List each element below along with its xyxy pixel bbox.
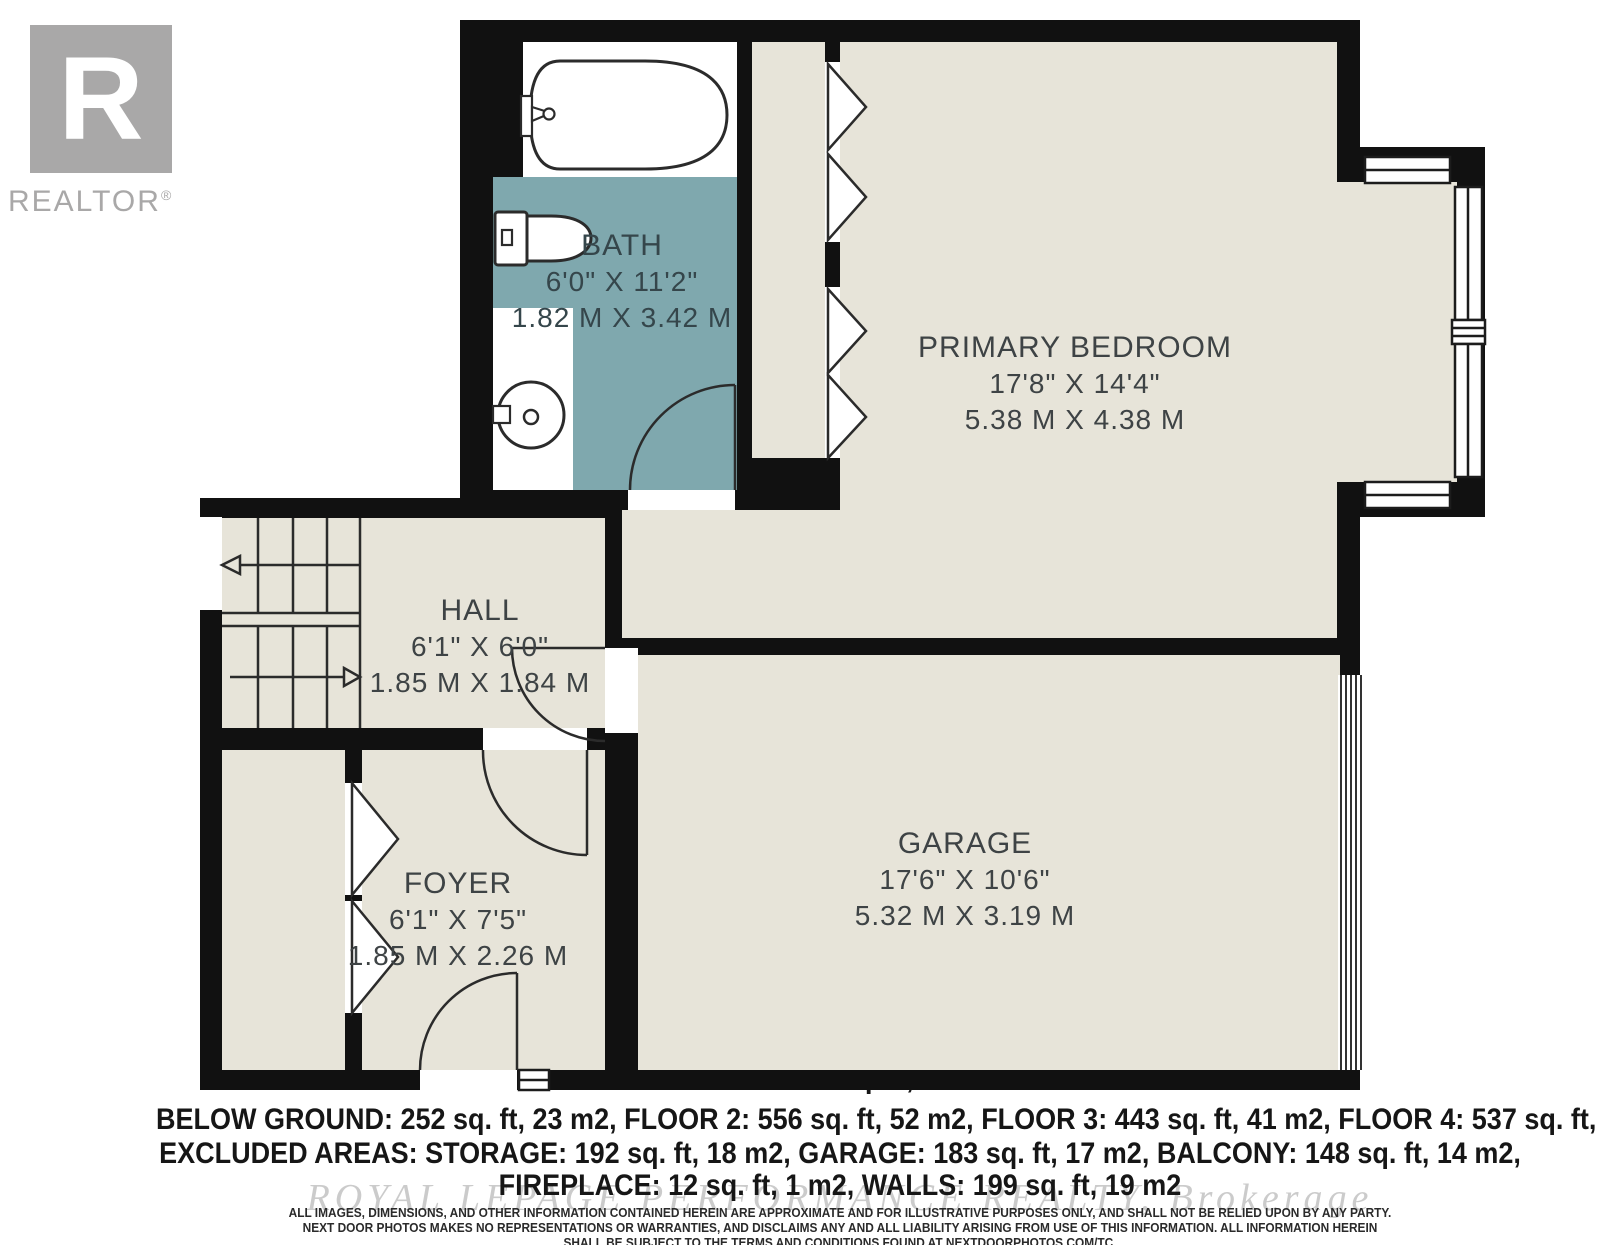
disclaimer-line-1: ALL IMAGES, DIMENSIONS, AND OTHER INFORM… — [80, 1206, 1600, 1220]
room-dims-metric: 1.85 M X 1.84 M — [330, 665, 630, 701]
room-dims-metric: 5.32 M X 3.19 M — [765, 898, 1165, 934]
bay-window-top — [1365, 157, 1450, 183]
bay-window-right-upper — [1455, 187, 1482, 320]
hall-foyer-door-opening — [483, 728, 587, 750]
room-dims-imperial: 17'8" X 14'4" — [875, 366, 1275, 402]
room-dims-imperial: 6'1" X 6'0" — [330, 629, 630, 665]
realtor-wordmark-text: REALTOR — [8, 185, 161, 218]
bay-window-mullion — [1452, 320, 1485, 344]
room-dims-metric: 5.38 M X 4.38 M — [875, 402, 1275, 438]
area-summary-floors: BELOW GROUND: 252 sq. ft, 23 m2, FLOOR 2… — [156, 1103, 1524, 1137]
floor-plan-page: TOTAL: 1788 sq. ft, 166 m2 ROYAL LEPAGE … — [0, 0, 1600, 1245]
room-dims-imperial: 6'1" X 7'5" — [308, 902, 608, 938]
room-name: PRIMARY BEDROOM — [875, 330, 1275, 366]
realtor-logo: R — [30, 25, 172, 173]
room-name: HALL — [330, 593, 630, 629]
bay-window-right-lower — [1455, 344, 1482, 477]
realtor-wordmark: REALTOR® — [8, 185, 173, 219]
registered-mark: ® — [161, 187, 173, 203]
stair-opening — [200, 517, 222, 610]
bath-door-opening — [628, 490, 735, 510]
room-name: BATH — [472, 228, 772, 264]
room-dims-imperial: 17'6" X 10'6" — [765, 862, 1165, 898]
room-name: FOYER — [308, 866, 608, 902]
room-label-bath: BATH 6'0" X 11'2" 1.82 M X 3.42 M — [472, 228, 772, 336]
room-dims-metric: 1.85 M X 2.26 M — [308, 938, 608, 974]
realtor-logo-letter: R — [58, 40, 143, 158]
room-label-foyer: FOYER 6'1" X 7'5" 1.85 M X 2.26 M — [308, 866, 608, 974]
room-label-garage: GARAGE 17'6" X 10'6" 5.32 M X 3.19 M — [765, 826, 1165, 934]
disclaimer-line-3: SHALL BE SUBJECT TO THE TERMS AND CONDIT… — [80, 1236, 1600, 1245]
room-dims-imperial: 6'0" X 11'2" — [472, 264, 772, 300]
area-summary-excluded: EXCLUDED AREAS: STORAGE: 192 sq. ft, 18 … — [156, 1137, 1524, 1171]
bathtub-icon — [521, 61, 727, 169]
room-label-primary-bedroom: PRIMARY BEDROOM 17'8" X 14'4" 5.38 M X 4… — [875, 330, 1275, 438]
bay-window-bottom — [1365, 482, 1450, 508]
room-dims-metric: 1.82 M X 3.42 M — [472, 300, 772, 336]
area-summary-fireplace-walls: FIREPLACE: 12 sq. ft, 1 m2, WALLS: 199 s… — [156, 1169, 1524, 1203]
disclaimer-line-2: NEXT DOOR PHOTOS MAKES NO REPRESENTATION… — [80, 1221, 1600, 1235]
floor-plan-drawing — [0, 0, 1600, 1245]
foyer-window — [519, 1070, 549, 1090]
room-label-hall: HALL 6'1" X 6'0" 1.85 M X 1.84 M — [330, 593, 630, 701]
room-name: GARAGE — [765, 826, 1165, 862]
entry-door-opening — [420, 1070, 517, 1090]
